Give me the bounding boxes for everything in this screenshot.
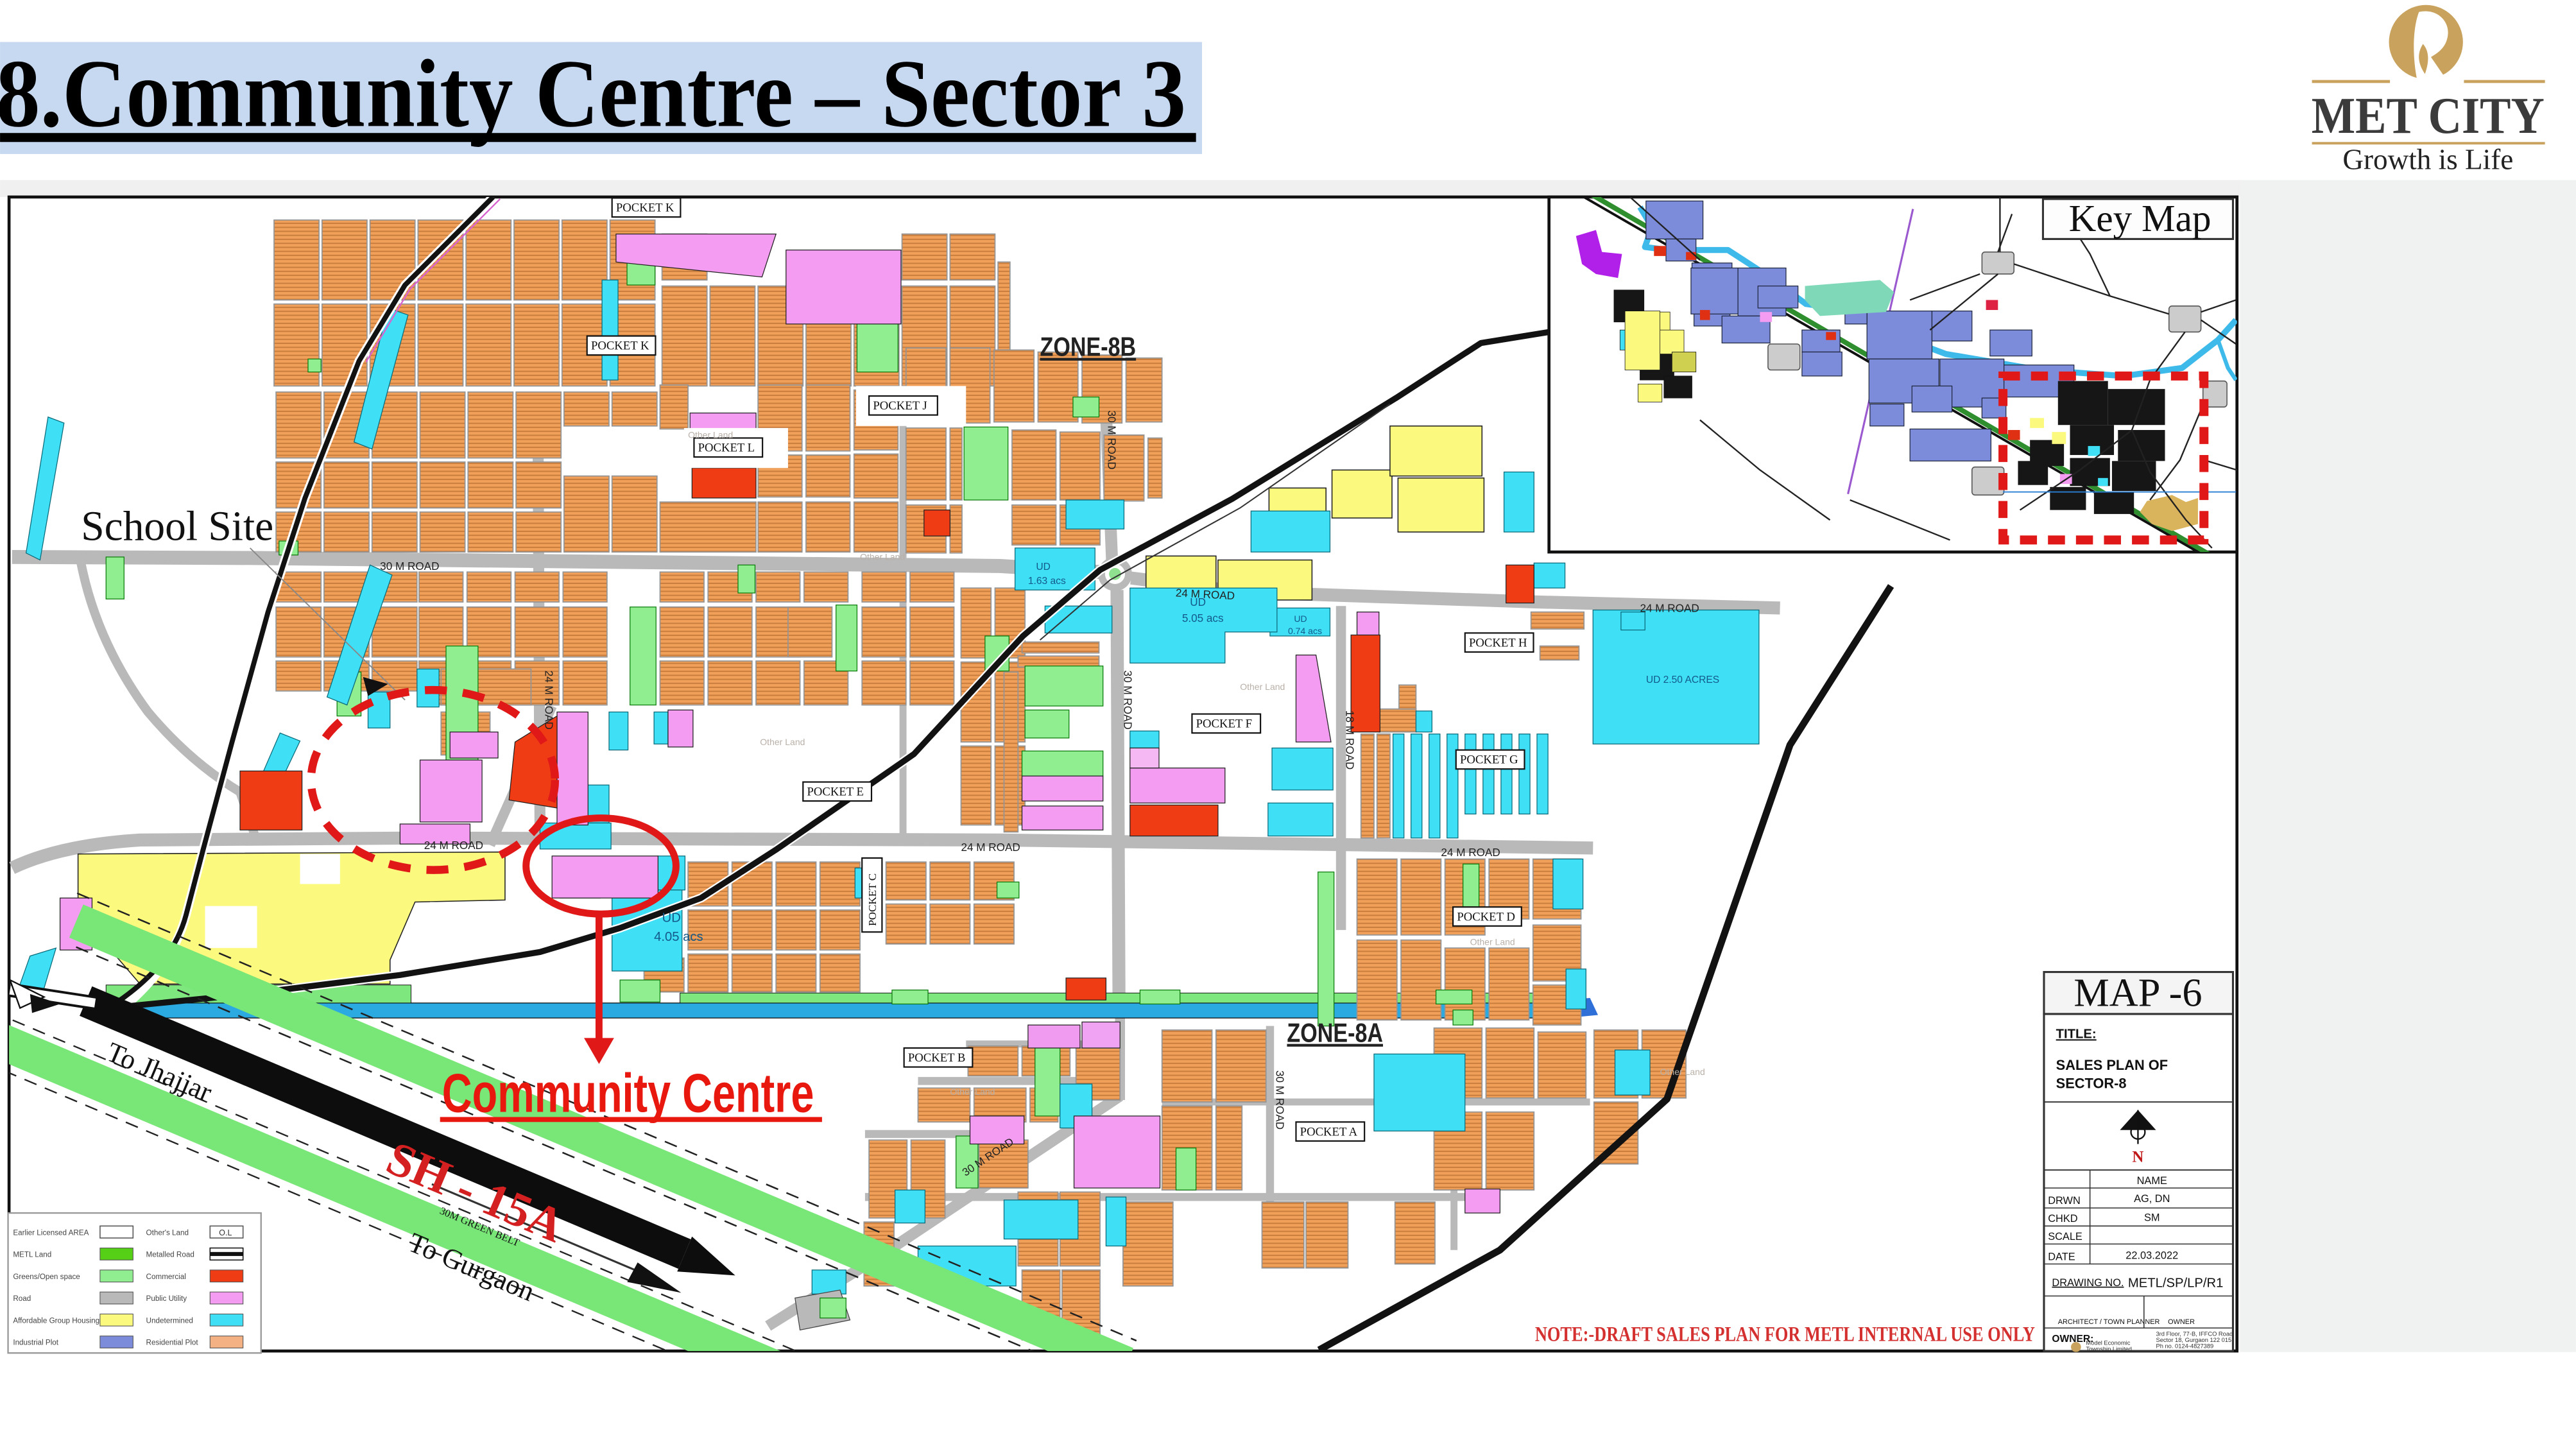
svg-text:24 M ROAD: 24 M ROAD [1640, 602, 1699, 615]
svg-text:Metalled Road: Metalled Road [146, 1251, 194, 1259]
svg-text:24 M ROAD: 24 M ROAD [542, 671, 555, 730]
svg-text:POCKET L: POCKET L [698, 442, 755, 455]
svg-text:UD: UD [1036, 562, 1051, 572]
svg-text:Growth is Life: Growth is Life [2342, 143, 2513, 175]
svg-text:CHKD: CHKD [2048, 1213, 2078, 1225]
svg-text:SECTOR-8: SECTOR-8 [2056, 1075, 2127, 1091]
svg-text:Earlier Licensed AREA: Earlier Licensed AREA [13, 1228, 89, 1237]
svg-text:Public Utility: Public Utility [146, 1294, 187, 1303]
svg-text:DATE: DATE [2048, 1251, 2075, 1262]
svg-text:O.L: O.L [219, 1228, 232, 1237]
svg-text:MET CITY: MET CITY [2312, 87, 2545, 144]
svg-text:Other's Land: Other's Land [146, 1228, 189, 1237]
svg-text:MAP -6: MAP -6 [2074, 971, 2202, 1015]
svg-text:POCKET H: POCKET H [1469, 636, 1527, 649]
svg-text:24 M ROAD: 24 M ROAD [1441, 846, 1500, 859]
svg-text:30 M ROAD: 30 M ROAD [380, 560, 439, 572]
svg-text:POCKET B: POCKET B [908, 1051, 965, 1065]
svg-text:24 M ROAD: 24 M ROAD [424, 839, 483, 852]
svg-text:SCALE: SCALE [2048, 1231, 2082, 1242]
svg-text:METL/SP/LP/R1: METL/SP/LP/R1 [2128, 1276, 2224, 1290]
svg-text:POCKET A: POCKET A [1300, 1125, 1358, 1139]
svg-text:Other Land: Other Land [760, 737, 805, 747]
svg-text:POCKET J: POCKET J [873, 399, 927, 413]
svg-text:N: N [2132, 1149, 2143, 1166]
svg-text:22.03.2022: 22.03.2022 [2125, 1250, 2178, 1262]
svg-text:UD 2.50 ACRES: UD 2.50 ACRES [1646, 675, 1719, 685]
svg-text:5.05 acs: 5.05 acs [1182, 612, 1224, 624]
svg-text:DRWN: DRWN [2048, 1195, 2081, 1207]
svg-text:POCKET K: POCKET K [616, 202, 674, 215]
svg-text:POCKET F: POCKET F [1196, 718, 1252, 731]
svg-text:School Site: School Site [81, 503, 273, 549]
svg-text:30 M ROAD: 30 M ROAD [1121, 671, 1134, 730]
svg-text:18 M ROAD: 18 M ROAD [1343, 710, 1356, 769]
svg-text:Industrial Plot: Industrial Plot [13, 1339, 58, 1347]
svg-text:UD: UD [662, 911, 681, 925]
svg-text:Commercial: Commercial [146, 1273, 186, 1281]
svg-text:SM: SM [2144, 1212, 2160, 1224]
svg-text:Affordable Group Housing: Affordable Group Housing [13, 1316, 99, 1325]
svg-text:Other Land: Other Land [688, 429, 733, 440]
svg-text:ZONE-8B: ZONE-8B [1040, 332, 1137, 362]
svg-text:ZONE-8A: ZONE-8A [1287, 1018, 1383, 1048]
svg-text:Road: Road [13, 1294, 31, 1303]
svg-text:Other Land: Other Land [1660, 1067, 1705, 1077]
svg-text:Other Land: Other Land [950, 1087, 995, 1097]
svg-text:POCKET K: POCKET K [591, 340, 649, 353]
svg-text:ARCHITECT / TOWN PLANNER: ARCHITECT / TOWN PLANNER [2058, 1318, 2160, 1326]
svg-text:Other Land: Other Land [1240, 682, 1285, 692]
svg-text:24 M ROAD: 24 M ROAD [961, 841, 1020, 854]
svg-text:0.74 acs: 0.74 acs [1288, 626, 1322, 636]
svg-text:4.05 acs: 4.05 acs [654, 930, 703, 944]
svg-text:POCKET E: POCKET E [807, 786, 864, 799]
svg-text:Community Centre: Community Centre [442, 1063, 814, 1124]
svg-text:POCKET C: POCKET C [866, 873, 879, 926]
svg-text:Other Land: Other Land [860, 552, 905, 562]
svg-text:30 M ROAD: 30 M ROAD [1106, 410, 1119, 469]
svg-text:30 M ROAD: 30 M ROAD [1273, 1070, 1286, 1130]
svg-text:TITLE:: TITLE: [2056, 1027, 2097, 1041]
svg-text:Other Land: Other Land [1470, 936, 1515, 947]
svg-text:SALES PLAN OF: SALES PLAN OF [2056, 1057, 2168, 1073]
svg-text:Residential Plot: Residential Plot [146, 1339, 199, 1347]
svg-text:UD: UD [1294, 614, 1307, 624]
svg-text:NOTE:-DRAFT SALES PLAN FOR MET: NOTE:-DRAFT SALES PLAN FOR METL INTERNAL… [1535, 1323, 2035, 1346]
svg-text:1.63 acs: 1.63 acs [1028, 576, 1066, 587]
svg-text:Key Map: Key Map [2069, 197, 2211, 239]
svg-text:Undetermined: Undetermined [146, 1316, 193, 1325]
svg-text:POCKET G: POCKET G [1460, 753, 1518, 767]
svg-text:METL Land: METL Land [13, 1251, 51, 1259]
svg-text:DRAWING NO.: DRAWING NO. [2052, 1277, 2124, 1289]
svg-text:AG, DN: AG, DN [2134, 1193, 2170, 1205]
svg-text:Greens/Open space: Greens/Open space [13, 1273, 80, 1281]
svg-text:UD: UD [1190, 596, 1206, 608]
svg-text:Ph no. 0124-4827389: Ph no. 0124-4827389 [2156, 1343, 2213, 1349]
svg-text:POCKET D: POCKET D [1457, 910, 1515, 924]
svg-text:Township Limited: Township Limited [2086, 1346, 2132, 1352]
svg-text:NAME: NAME [2137, 1175, 2167, 1187]
svg-text:8.Community Centre – Sector 3: 8.Community Centre – Sector 3 [0, 39, 1186, 147]
svg-text:OWNER: OWNER [2168, 1318, 2195, 1326]
